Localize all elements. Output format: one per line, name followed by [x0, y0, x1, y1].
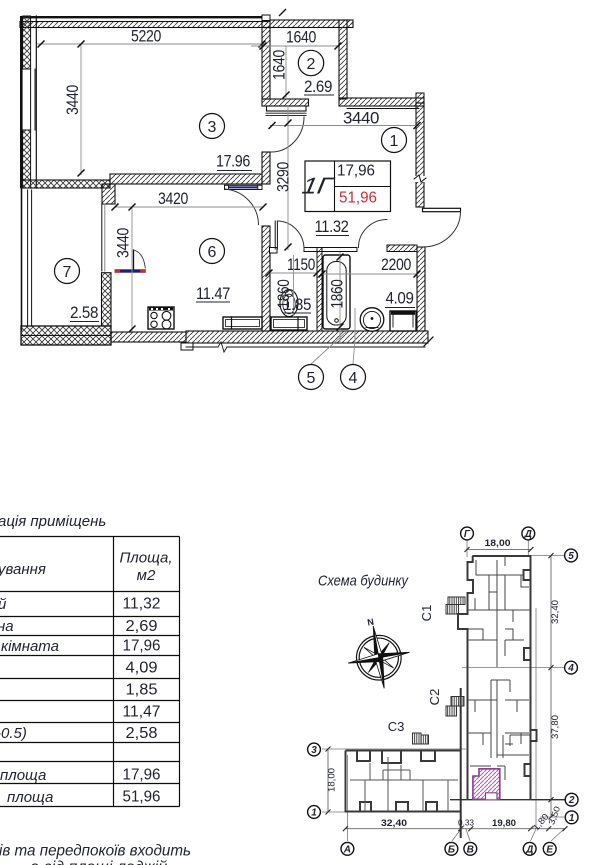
svg-text:3: 3 — [208, 119, 217, 136]
svg-text:7: 7 — [63, 264, 72, 281]
svg-text:2.69: 2.69 — [304, 78, 332, 96]
svg-text:Д: Д — [524, 529, 532, 540]
svg-text:С2: С2 — [427, 689, 442, 706]
svg-text:1: 1 — [390, 133, 399, 150]
svg-text:площа: площа — [7, 789, 53, 806]
svg-text:11.47: 11.47 — [196, 285, 230, 303]
svg-text:3290: 3290 — [274, 162, 293, 192]
svg-text:Площа,: Площа, — [119, 550, 172, 567]
svg-text:Б: Б — [448, 844, 455, 855]
svg-text:1640: 1640 — [286, 28, 316, 47]
svg-text:4.09: 4.09 — [386, 290, 414, 308]
svg-text:ів та передпокоїв входить: ів та передпокоїв входить — [0, 843, 191, 860]
svg-text:кімната: кімната — [1, 638, 59, 655]
svg-text:32,40: 32,40 — [381, 818, 407, 829]
svg-text:6: 6 — [208, 244, 217, 261]
svg-text:1860: 1860 — [328, 280, 347, 309]
svg-text:3: 3 — [311, 745, 317, 756]
svg-text:5220: 5220 — [131, 27, 161, 46]
svg-text:11,32: 11,32 — [123, 596, 161, 613]
svg-text:1: 1 — [569, 813, 575, 824]
svg-text:32,40: 32,40 — [550, 600, 560, 624]
svg-text:11.32: 11.32 — [315, 218, 349, 236]
svg-text:2,69: 2,69 — [126, 618, 158, 635]
svg-text:18,00: 18,00 — [327, 768, 337, 792]
svg-text:2,58: 2,58 — [126, 725, 158, 742]
svg-text:1.85: 1.85 — [283, 296, 311, 314]
svg-text:Г: Г — [464, 529, 471, 540]
svg-text:Схема будинку: Схема будинку — [318, 574, 409, 590]
svg-text:2: 2 — [307, 56, 316, 73]
svg-text:17,96: 17,96 — [123, 767, 161, 784]
svg-text:на: на — [0, 618, 14, 635]
svg-text:А: А — [343, 844, 351, 855]
svg-text:а від площі лоджій: а від площі лоджій — [30, 859, 167, 865]
svg-text:51,96: 51,96 — [339, 190, 377, 207]
svg-text:С1: С1 — [419, 605, 434, 622]
svg-text:37,80: 37,80 — [550, 715, 560, 739]
svg-text:ування: ування — [0, 561, 46, 578]
svg-text:4,09: 4,09 — [126, 660, 158, 677]
svg-text:1150: 1150 — [287, 255, 315, 274]
svg-text:-0.5): -0.5) — [0, 725, 27, 742]
svg-text:51,96: 51,96 — [123, 789, 161, 806]
svg-text:4: 4 — [349, 370, 358, 387]
svg-text:2.58: 2.58 — [70, 304, 98, 322]
svg-text:3440: 3440 — [343, 109, 379, 128]
svg-text:2: 2 — [568, 795, 575, 806]
svg-text:5: 5 — [568, 551, 574, 562]
svg-text:м2: м2 — [137, 567, 156, 584]
svg-text:11,47: 11,47 — [123, 704, 161, 721]
svg-text:1,85: 1,85 — [126, 682, 158, 699]
svg-text:ація приміщень: ація приміщень — [0, 513, 106, 530]
svg-text:С3: С3 — [388, 719, 405, 734]
svg-text:площа: площа — [0, 767, 46, 784]
svg-text:2200: 2200 — [381, 255, 411, 274]
svg-text:3440: 3440 — [114, 228, 133, 258]
svg-text:17,96: 17,96 — [337, 163, 375, 180]
svg-text:19,80: 19,80 — [492, 818, 516, 829]
svg-text:3440: 3440 — [63, 85, 82, 115]
svg-text:3420: 3420 — [158, 189, 188, 208]
svg-text:й: й — [0, 596, 7, 613]
svg-text:1640: 1640 — [270, 50, 289, 80]
svg-text:17.96: 17.96 — [216, 153, 250, 171]
svg-text:17,96: 17,96 — [123, 638, 161, 655]
svg-text:5: 5 — [307, 370, 316, 387]
svg-text:1: 1 — [311, 808, 317, 819]
svg-text:В: В — [467, 844, 474, 855]
svg-text:Е: Е — [546, 844, 553, 855]
svg-text:0,33: 0,33 — [458, 819, 475, 828]
svg-text:4: 4 — [567, 663, 574, 674]
svg-text:Д: Д — [525, 844, 533, 855]
svg-text:18,00: 18,00 — [485, 538, 511, 549]
